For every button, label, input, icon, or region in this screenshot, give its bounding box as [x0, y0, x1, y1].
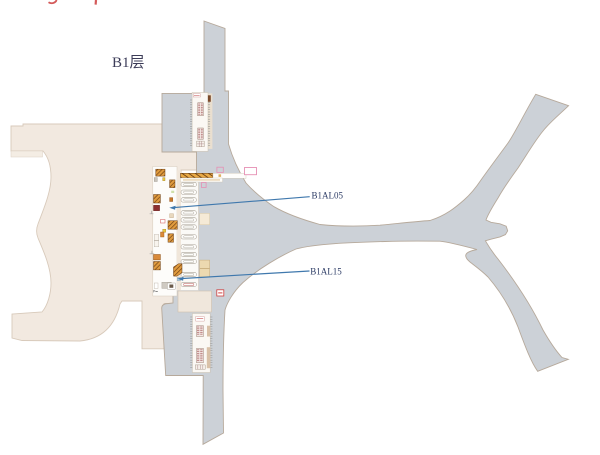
svg-text:B1AL15: B1AL15: [310, 267, 342, 277]
svg-text:B1AL05: B1AL05: [312, 191, 344, 201]
svg-text:B1层: B1层: [112, 55, 145, 71]
svg-text:P••: P••: [153, 290, 159, 294]
